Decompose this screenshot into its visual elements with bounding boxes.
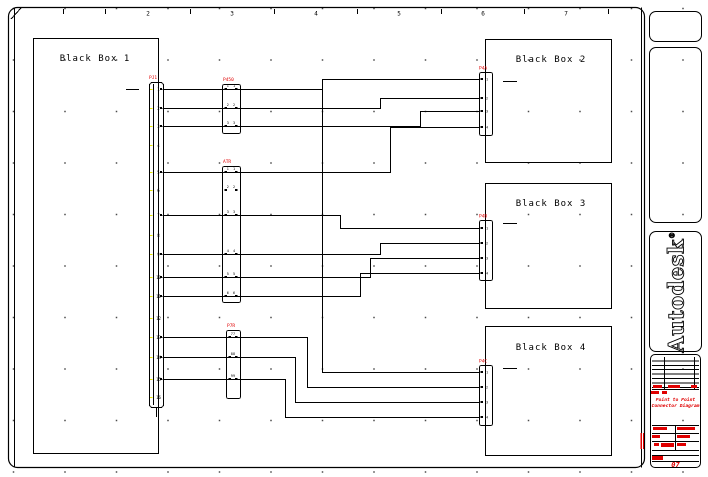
pin-mark <box>235 88 237 90</box>
pin-mark <box>225 88 227 90</box>
titleblock-field <box>661 443 674 447</box>
pin-number: 3 <box>486 257 488 261</box>
black-box-1 <box>34 39 159 454</box>
inline-connector <box>223 167 241 303</box>
pin-mark <box>225 107 227 109</box>
box-connector-label: P4C <box>479 359 487 365</box>
pin-mark <box>229 356 231 358</box>
pin-number: 9 <box>157 252 160 257</box>
pin-mark <box>160 107 162 109</box>
black-box-4-label: Black Box 4 <box>516 343 587 353</box>
pin-mark <box>225 276 227 278</box>
titleblock-divider <box>675 425 676 450</box>
pin-number: 4 <box>227 249 229 253</box>
pin-mark <box>160 276 162 278</box>
pin-mark <box>481 386 483 388</box>
stamp-text <box>651 391 659 394</box>
pin-number: 16 <box>156 395 161 400</box>
pin-number: 5 <box>227 272 229 276</box>
titleblock-field <box>652 435 660 438</box>
pin-mark <box>160 336 162 338</box>
pin-mark <box>481 97 483 99</box>
pin-number: 2 <box>227 103 229 107</box>
pin-number: 3 <box>227 210 229 214</box>
pin-mark <box>481 272 483 274</box>
pin-mark <box>160 253 162 255</box>
pin-number: 8 <box>233 352 235 356</box>
wire <box>163 216 480 229</box>
pin-number: 3 <box>233 121 235 125</box>
pin-number: 1 <box>227 84 229 88</box>
pin-number: 1 <box>233 84 235 88</box>
wire <box>323 90 480 373</box>
pin-number: 3 <box>157 124 160 129</box>
wire <box>163 80 480 90</box>
sheet-border <box>9 8 645 468</box>
side-panel-top-box <box>649 11 702 42</box>
pin-number: 5 <box>233 272 235 276</box>
titleblock-field <box>677 435 690 438</box>
pin-number: 3 <box>486 110 488 114</box>
wire <box>163 128 480 173</box>
ruler-number: 6 <box>481 11 485 18</box>
pin-number: 4 <box>157 143 160 148</box>
pin-mark <box>160 378 162 380</box>
wire <box>163 274 480 297</box>
autodesk-logo: Autodesk® <box>663 231 688 352</box>
titleblock-field <box>652 456 663 460</box>
pin-number: 12 <box>156 316 161 321</box>
ruler-number: 7 <box>564 11 568 18</box>
revision-entry <box>653 385 662 388</box>
pin-mark <box>481 371 483 373</box>
pin-number: 1 <box>486 78 488 82</box>
autodesk-logo-box: Autodesk® <box>649 231 702 352</box>
pin-mark <box>235 189 237 191</box>
box-connector-label: P4A <box>479 66 487 72</box>
pin-mark <box>481 416 483 418</box>
pin-mark <box>481 110 483 112</box>
inline-connector-label: P450 <box>223 77 234 83</box>
pin-mark <box>160 171 162 173</box>
pin-mark <box>235 295 237 297</box>
pin-number: 2 <box>233 185 235 189</box>
ruler-number: 5 <box>397 11 401 18</box>
pin-number: 2 <box>233 103 235 107</box>
pin-mark <box>235 125 237 127</box>
pin-number: 8 <box>157 233 160 238</box>
pin-number: 7 <box>157 213 160 218</box>
pin-mark <box>481 242 483 244</box>
pin-mark <box>235 336 237 338</box>
pin-mark <box>481 401 483 403</box>
pin-number: 7 <box>233 332 235 336</box>
pin-number: 4 <box>486 126 488 130</box>
pin-mark <box>160 88 162 90</box>
titleblock-field <box>654 443 659 446</box>
pin-number: 2 <box>486 386 488 390</box>
pin-mark <box>235 107 237 109</box>
pin-mark <box>225 189 227 191</box>
pin-number: 4 <box>233 249 235 253</box>
titleblock-field <box>653 427 667 430</box>
pin-mark <box>481 126 483 128</box>
pin-number: 6 <box>227 291 229 295</box>
stamp-text <box>662 391 667 394</box>
drawing-title-line2: Connector Diagram <box>651 404 700 410</box>
pin-mark <box>235 276 237 278</box>
pin-number: 1 <box>157 87 160 92</box>
black-box-1-label: Black Box 1 <box>60 54 131 64</box>
pin-mark <box>225 171 227 173</box>
ruler-number: 4 <box>314 11 318 18</box>
black-box-3-label: Black Box 3 <box>516 199 587 209</box>
side-panel-tall-box <box>649 47 702 223</box>
wire <box>163 99 480 109</box>
pin-mark <box>225 214 227 216</box>
pin-number: 6 <box>233 291 235 295</box>
pin-number: 2 <box>486 97 488 101</box>
pin-mark <box>235 214 237 216</box>
pin-mark <box>235 253 237 255</box>
pin-number: 3 <box>227 121 229 125</box>
pin-mark <box>160 125 162 127</box>
pin-number: 9 <box>233 374 235 378</box>
pin-number: 6 <box>157 188 160 193</box>
pin-mark <box>225 125 227 127</box>
black-box-2-label: Black Box 2 <box>516 55 587 65</box>
titleblock-field <box>677 427 695 430</box>
wire <box>163 259 480 278</box>
pin-mark <box>481 227 483 229</box>
inline-connector-label: ATR <box>223 159 231 165</box>
wiring-diagram: 234567Black Box 1Black Box 2Black Box 3B… <box>0 0 708 477</box>
cad-sheet: { "colors":{"line":"#000000","red":"#e00… <box>0 0 708 477</box>
pin-number: 1 <box>486 227 488 231</box>
pin-number: 1 <box>486 371 488 375</box>
pin-mark <box>225 253 227 255</box>
pin-number: 5 <box>157 170 160 175</box>
pin-mark <box>235 356 237 358</box>
wire <box>163 112 480 127</box>
titleblock-rule <box>652 450 699 451</box>
registered-mark: ® <box>667 231 676 239</box>
pin-number: 2 <box>486 242 488 246</box>
ruler-number: 3 <box>230 11 234 18</box>
pin-mark <box>160 214 162 216</box>
pin-mark <box>481 78 483 80</box>
pin-number: 4 <box>486 416 488 420</box>
pin-number: 3 <box>486 401 488 405</box>
autodesk-logo-text: Autodesk <box>663 238 688 352</box>
pin-number: 2 <box>157 106 160 111</box>
box-connector-label: P4B <box>479 214 487 220</box>
pin-number: 4 <box>486 272 488 276</box>
pin-mark <box>229 336 231 338</box>
wire <box>163 244 480 255</box>
revision-table-divider <box>664 357 665 389</box>
pin-number: 3 <box>233 210 235 214</box>
pin-mark <box>160 295 162 297</box>
inline-connector-label: P7R <box>227 323 235 329</box>
ruler-number: 2 <box>146 11 150 18</box>
pin-mark <box>160 356 162 358</box>
pin-mark <box>481 257 483 259</box>
pin-mark <box>229 378 231 380</box>
pin-number: 1 <box>233 167 235 171</box>
pin-mark <box>225 295 227 297</box>
sheet-number: 07 <box>651 461 700 469</box>
pin-mark <box>235 378 237 380</box>
drawing-title-line1: Point to Point <box>651 398 700 404</box>
title-block: Point to Point Connector Diagram 07 <box>650 354 701 468</box>
terminal-strip-label: PJ1 <box>149 75 157 81</box>
wire <box>163 380 480 418</box>
titleblock-field <box>677 443 686 446</box>
inline-connector <box>227 331 241 399</box>
revision-entry <box>691 385 697 388</box>
pin-mark <box>235 171 237 173</box>
pin-number: 2 <box>227 185 229 189</box>
pin-number: 1 <box>227 167 229 171</box>
revision-entry <box>668 385 680 388</box>
